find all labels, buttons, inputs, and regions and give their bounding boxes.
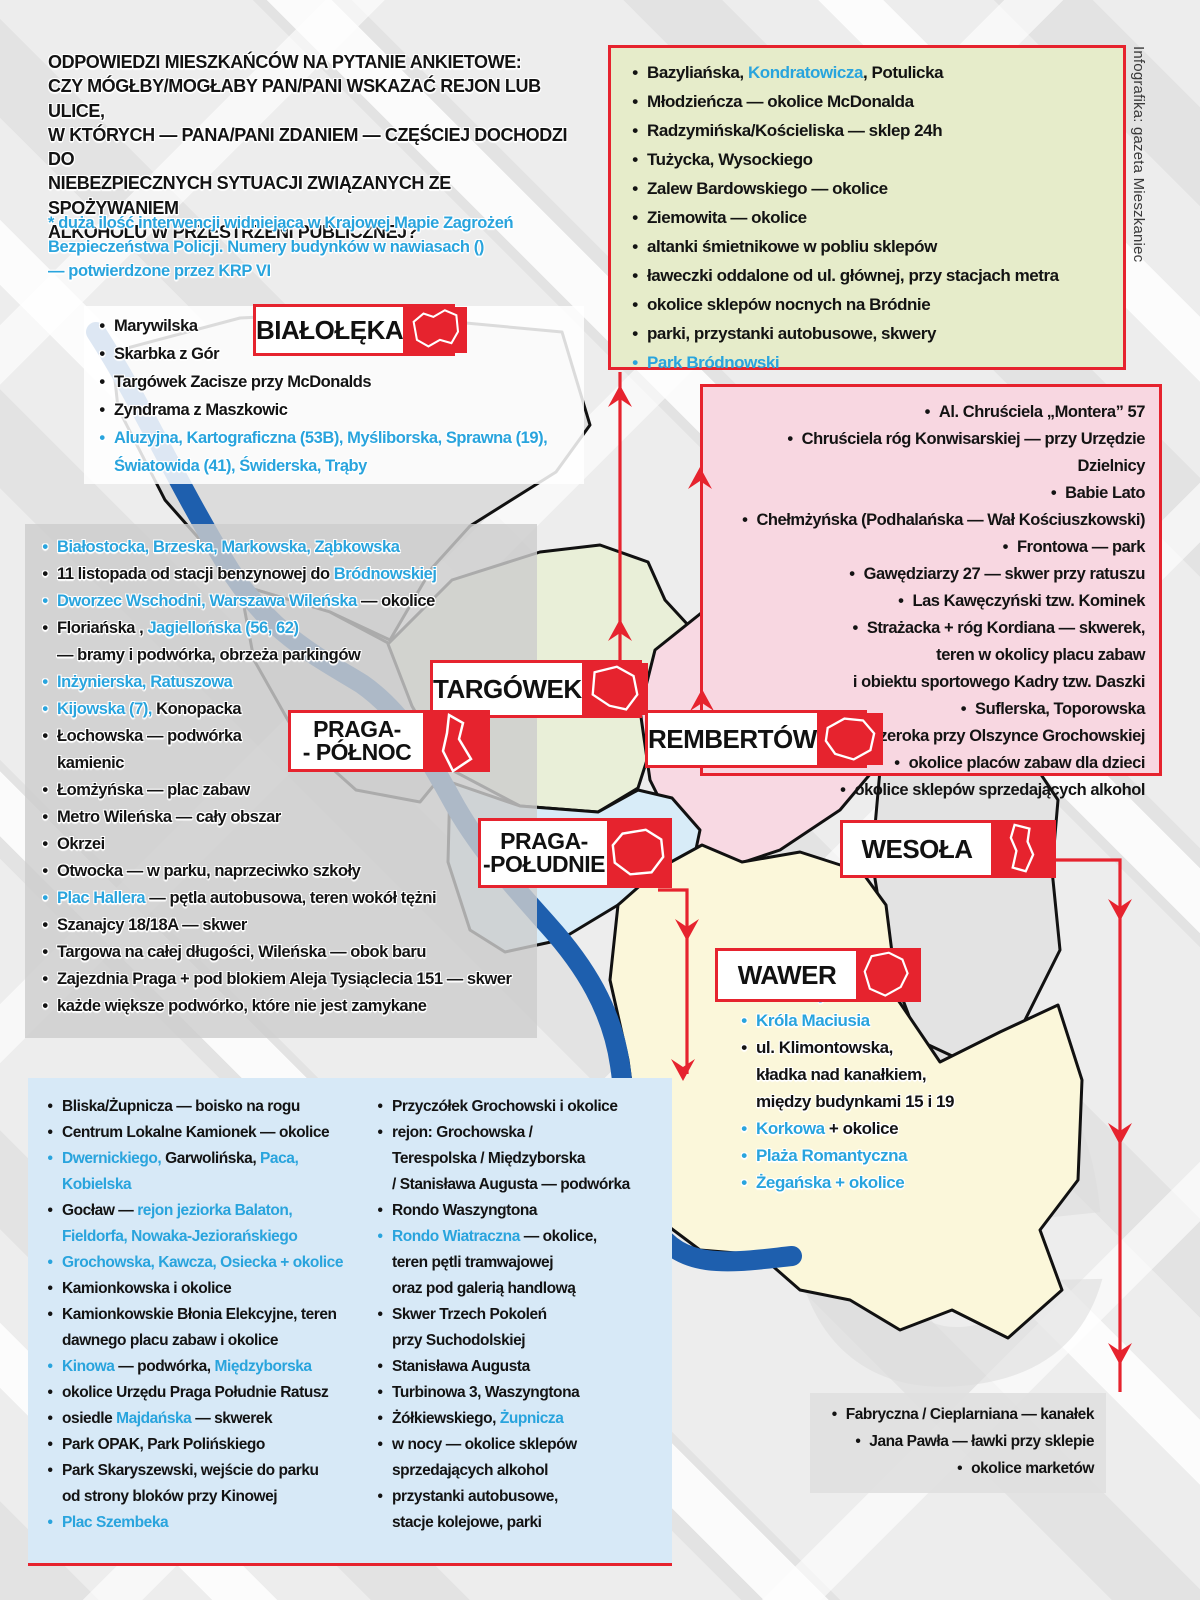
list-item: •rejon: Grochowska / Terespolska / Międz… <box>368 1120 664 1198</box>
bullet-icon: • <box>925 403 930 421</box>
bullet-icon: • <box>90 340 114 368</box>
list-item: •Jana Pawła — ławki przy sklepie <box>822 1428 1094 1455</box>
bullet-icon: • <box>732 1169 756 1196</box>
bullet-icon: • <box>732 1034 756 1061</box>
list-item: •Gocław — rejon jeziorka Balaton, Fieldo… <box>38 1198 368 1250</box>
bullet-icon: • <box>33 777 57 804</box>
list-item: •Targówek Zacisze przy McDonalds <box>90 368 578 396</box>
list-item: •Przyczółek Grochowski i okolice <box>368 1094 664 1120</box>
list-item-text: Targowa na całej długości, Wileńska — ob… <box>57 939 533 966</box>
list-item: •Dworzec Wschodni, Warszawa Wileńska — o… <box>33 588 533 615</box>
list-item: •Park Bródnowski <box>623 348 1111 377</box>
bullet-icon: • <box>38 1302 62 1328</box>
list-item-text: Plaża Romantyczna <box>756 1142 1034 1169</box>
bullet-icon: • <box>33 669 57 696</box>
list-item-text: Skwer Trzech Pokoleń przy Suchodolskiej <box>392 1302 664 1354</box>
bullet-icon: • <box>38 1510 62 1536</box>
bullet-icon: • <box>623 145 647 174</box>
list-item-text: Korkowa + okolice <box>756 1115 1034 1142</box>
list-item-text: okolice sklepów sprzedających alkohol <box>854 781 1145 799</box>
bullet-icon: • <box>33 939 57 966</box>
bullet-icon: • <box>38 1458 62 1484</box>
bullet-icon: • <box>732 1007 756 1034</box>
list-item-text: Park Skaryszewski, wejście do parku od s… <box>62 1458 368 1510</box>
list-item-text: Okrzei <box>57 831 533 858</box>
wawer-list-panel: •Derkaczy + okolice•Króla Maciusia•ul. K… <box>732 980 1034 1196</box>
list-item: •Otwocka — w parku, naprzeciwko szkoły <box>33 858 533 885</box>
list-item-text: Gawędziarzy 27 — skwer przy ratuszu <box>864 565 1145 583</box>
list-item-text: w nocy — okolice sklepów sprzedających a… <box>392 1432 664 1484</box>
bullet-icon: • <box>623 116 647 145</box>
list-item-text: Żółkiewskiego, Żupnicza <box>392 1406 664 1432</box>
bullet-icon: • <box>623 348 647 377</box>
bullet-icon: • <box>623 319 647 348</box>
district-shape-icon <box>607 821 669 885</box>
bullet-icon: • <box>898 592 903 610</box>
district-label-text: REMBERTÓW <box>648 713 817 765</box>
bullet-icon: • <box>623 174 647 203</box>
list-item: •okolice sklepów nocnych na Bródnie <box>623 290 1111 319</box>
list-item-text: okolice marketów <box>971 1460 1094 1477</box>
bullet-icon: • <box>368 1354 392 1380</box>
list-item: •Tużycka, Wysockiego <box>623 145 1111 174</box>
bullet-icon: • <box>855 1433 860 1450</box>
list-item: •parki, przystanki autobusowe, skwery <box>623 319 1111 348</box>
list-item: •okolice sklepów sprzedających alkohol <box>717 777 1145 804</box>
district-shape-icon <box>991 823 1053 875</box>
bullet-icon: • <box>38 1198 62 1224</box>
list-item: •Plaża Romantyczna <box>732 1142 1034 1169</box>
list-item-text: Metro Wileńska — cały obszar <box>57 804 533 831</box>
list-item: •Żegańska + okolice <box>732 1169 1034 1196</box>
wesola-list-panel: •Fabryczna / Cieplarniana — kanałek•Jana… <box>810 1393 1106 1493</box>
list-item: •Plac Hallera — pętla autobusowa, teren … <box>33 885 533 912</box>
list-item-text: Łomżyńska — plac zabaw <box>57 777 533 804</box>
list-item: •Radzymińska/Kościeliska — sklep 24h <box>623 116 1111 145</box>
list-item: •Strażacka + róg Kordiana — skwerek, ter… <box>717 615 1145 696</box>
footnote: * duża ilość interwencji widniejąca w Kr… <box>48 212 553 284</box>
bullet-icon: • <box>368 1432 392 1458</box>
list-item-text: Szanajcy 18/18A — skwer <box>57 912 533 939</box>
list-item: •Szanajcy 18/18A — skwer <box>33 912 533 939</box>
list-item-text: Króla Maciusia <box>756 1007 1034 1034</box>
list-item: •Kamionkowskie Błonia Elekcyjne, teren d… <box>38 1302 368 1354</box>
bullet-icon: • <box>38 1432 62 1458</box>
list-item-text: Suflerska, Toporowska <box>975 700 1145 718</box>
bullet-icon: • <box>38 1276 62 1302</box>
district-label-praga-polnoc: PRAGA- - PÓŁNOC <box>288 710 490 772</box>
bullet-icon: • <box>368 1198 392 1224</box>
list-item: •Metro Wileńska — cały obszar <box>33 804 533 831</box>
bullet-icon: • <box>33 993 57 1020</box>
list-item: •Turbinowa 3, Waszyngtona <box>368 1380 664 1406</box>
list-item: •Zyndrama z Maszkowic <box>90 396 578 424</box>
list-item-text: Grochowska, Kawcza, Osiecka + okolice <box>62 1250 368 1276</box>
district-label-text: WESOŁA <box>843 823 991 875</box>
list-item: •Park Skaryszewski, wejście do parku od … <box>38 1458 368 1510</box>
district-shape-icon <box>403 307 467 353</box>
bullet-icon: • <box>894 754 899 772</box>
list-item: •Okrzei <box>33 831 533 858</box>
district-shape-icon <box>817 713 883 765</box>
list-item: •Króla Maciusia <box>732 1007 1034 1034</box>
list-item-text: Park OPAK, Park Polińskiego <box>62 1432 368 1458</box>
list-item: •Fabryczna / Cieplarniana — kanałek <box>822 1401 1094 1428</box>
list-item: •Park OPAK, Park Polińskiego <box>38 1432 368 1458</box>
district-label-wesola: WESOŁA <box>840 820 1056 878</box>
bullet-icon: • <box>1051 484 1056 502</box>
list-item-text: Radzymińska/Kościeliska — sklep 24h <box>647 116 1111 145</box>
list-item: •Korkowa + okolice <box>732 1115 1034 1142</box>
bullet-icon: • <box>33 561 57 588</box>
bullet-icon: • <box>368 1380 392 1406</box>
list-item-text: Otwocka — w parku, naprzeciwko szkoły <box>57 858 533 885</box>
list-item-text: Tużycka, Wysockiego <box>647 145 1111 174</box>
district-label-bialoleka: BIAŁOŁĘKA <box>253 304 455 356</box>
list-item: •Centrum Lokalne Kamionek — okolice <box>38 1120 368 1146</box>
list-item-text: Bliska/Żupnicza — boisko na rogu <box>62 1094 368 1120</box>
list-item-text: Białostocka, Brzeska, Markowska, Ząbkows… <box>57 534 533 561</box>
district-label-text: BIAŁOŁĘKA <box>256 307 403 353</box>
bullet-icon: • <box>38 1406 62 1432</box>
list-item: •Bazyliańska, Kondratowicza, Potulicka <box>623 58 1111 87</box>
district-label-text: WAWER <box>718 951 856 999</box>
list-item-text: Dworzec Wschodni, Warszawa Wileńska — ok… <box>57 588 533 615</box>
district-shape-icon <box>856 951 918 999</box>
district-shape-icon <box>423 713 487 769</box>
list-item: •Białostocka, Brzeska, Markowska, Ząbkow… <box>33 534 533 561</box>
bullet-icon: • <box>33 804 57 831</box>
list-item-text: Ziemowita — okolice <box>647 203 1111 232</box>
list-item: •Chruściela róg Konwisarskiej — przy Urz… <box>717 426 1145 480</box>
targowek-list: •Bazyliańska, Kondratowicza, Potulicka•M… <box>623 58 1111 377</box>
bullet-icon: • <box>90 368 114 396</box>
list-item: •Chełmżyńska (Podhalańska — Wał Kościusz… <box>717 507 1145 534</box>
district-label-wawer: WAWER <box>715 948 921 1002</box>
bullet-icon: • <box>368 1120 392 1146</box>
list-item-text: Plac Szembeka <box>62 1510 368 1536</box>
list-item: •osiedle Majdańska — skwerek <box>38 1406 368 1432</box>
list-item-text: parki, przystanki autobusowe, skwery <box>647 319 1111 348</box>
list-item: •Łomżyńska — plac zabaw <box>33 777 533 804</box>
district-label-text: PRAGA- -POŁUDNIE <box>481 821 607 885</box>
list-item-text: Żegańska + okolice <box>756 1169 1034 1196</box>
list-item-text: okolice sklepów nocnych na Bródnie <box>647 290 1111 319</box>
list-item-text: Jana Pawła — ławki przy sklepie <box>869 1433 1094 1450</box>
bullet-icon: • <box>38 1354 62 1380</box>
targowek-list-panel: •Bazyliańska, Kondratowicza, Potulicka•M… <box>608 45 1126 370</box>
list-item: •Bliska/Żupnicza — boisko na rogu <box>38 1094 368 1120</box>
list-item-text: Dwernickiego, Garwolińska, Paca, Kobiels… <box>62 1146 368 1198</box>
list-item-text: Plac Hallera — pętla autobusowa, teren w… <box>57 885 533 912</box>
bullet-icon: • <box>368 1484 392 1510</box>
list-item: •Kinowa — podwórka, Międzyborska <box>38 1354 368 1380</box>
bullet-icon: • <box>623 203 647 232</box>
bullet-icon: • <box>368 1302 392 1328</box>
bullet-icon: • <box>38 1380 62 1406</box>
bullet-icon: • <box>852 619 857 637</box>
list-item: •Al. Chruściela „Montera” 57 <box>717 399 1145 426</box>
bullet-icon: • <box>90 396 114 424</box>
bullet-icon: • <box>832 1406 837 1423</box>
list-item-text: Zajezdnia Praga + pod blokiem Aleja Tysi… <box>57 966 533 993</box>
list-item-text: okolice Urzędu Praga Południe Ratusz <box>62 1380 368 1406</box>
list-item: •Grochowska, Kawcza, Osiecka + okolice <box>38 1250 368 1276</box>
list-item: •Stanisława Augusta <box>368 1354 664 1380</box>
bullet-icon: • <box>623 87 647 116</box>
praga-poludnie-column-2: •Przyczółek Grochowski i okolice•rejon: … <box>368 1094 664 1551</box>
bullet-icon: • <box>38 1120 62 1146</box>
list-item-text: Kamionkowska i okolice <box>62 1276 368 1302</box>
list-item-text: Strażacka + róg Kordiana — skwerek, tere… <box>853 619 1145 691</box>
bullet-icon: • <box>368 1094 392 1120</box>
list-item-text: Aluzyjna, Kartograficzna (53B), Myślibor… <box>114 424 578 480</box>
list-item: •Plac Szembeka <box>38 1510 368 1536</box>
list-item: •Gawędziarzy 27 — skwer przy ratuszu <box>717 561 1145 588</box>
list-item-text: ul. Klimontowska, kładka nad kanałkiem, … <box>756 1034 1034 1115</box>
list-item-text: Chełmżyńska (Podhalańska — Wał Kościuszk… <box>756 511 1145 529</box>
bullet-icon: • <box>33 588 57 615</box>
list-item-text: Kinowa — podwórka, Międzyborska <box>62 1354 368 1380</box>
praga-polnoc-list: •Białostocka, Brzeska, Markowska, Ząbkow… <box>33 534 533 1020</box>
list-item: •11 listopada od stacji benzynowej do Br… <box>33 561 533 588</box>
list-item-text: Chruściela róg Konwisarskiej — przy Urzę… <box>802 430 1149 475</box>
list-item: •w nocy — okolice sklepów sprzedających … <box>368 1432 664 1484</box>
bullet-icon: • <box>849 565 854 583</box>
bullet-icon: • <box>33 966 57 993</box>
list-item-text: Kamionkowskie Błonia Elekcyjne, teren da… <box>62 1302 368 1354</box>
list-item-text: Frontowa — park <box>1017 538 1145 556</box>
bullet-icon: • <box>1003 538 1008 556</box>
bullet-icon: • <box>33 534 57 561</box>
district-shape-icon <box>582 663 648 715</box>
list-item-text: Rondo Waszyngtona <box>392 1198 664 1224</box>
bullet-icon: • <box>38 1250 62 1276</box>
list-item: •Kamionkowska i okolice <box>38 1276 368 1302</box>
list-item: •Dwernickiego, Garwolińska, Paca, Kobiel… <box>38 1146 368 1198</box>
list-item: •Zalew Bardowskiego — okolice <box>623 174 1111 203</box>
list-item: •przystanki autobusowe, stacje kolejowe,… <box>368 1484 664 1536</box>
praga-poludnie-list-panel: •Bliska/Żupnicza — boisko na rogu•Centru… <box>28 1078 672 1566</box>
list-item: •Babie Lato <box>717 480 1145 507</box>
list-item-text: altanki śmietnikowe w pobliu sklepów <box>647 232 1111 261</box>
list-item: •Rondo Waszyngtona <box>368 1198 664 1224</box>
list-item-text: Turbinowa 3, Waszyngtona <box>392 1380 664 1406</box>
bullet-icon: • <box>840 781 845 799</box>
list-item: •ławeczki oddalone od ul. głównej, przy … <box>623 261 1111 290</box>
list-item-text: osiedle Majdańska — skwerek <box>62 1406 368 1432</box>
list-item-text: ławeczki oddalone od ul. głównej, przy s… <box>647 261 1111 290</box>
wesola-list: •Fabryczna / Cieplarniana — kanałek•Jana… <box>822 1401 1094 1482</box>
list-item: •Zajezdnia Praga + pod blokiem Aleja Tys… <box>33 966 533 993</box>
list-item-text: Szeroka przy Olszynce Grochowskiej <box>869 727 1145 745</box>
list-item-text: Przyczółek Grochowski i okolice <box>392 1094 664 1120</box>
bullet-icon: • <box>33 858 57 885</box>
list-item-text: rejon: Grochowska / Terespolska / Między… <box>392 1120 664 1198</box>
list-item: •okolice Urzędu Praga Południe Ratusz <box>38 1380 368 1406</box>
bullet-icon: • <box>33 615 57 642</box>
bullet-icon: • <box>33 831 57 858</box>
bullet-icon: • <box>961 700 966 718</box>
list-item-text: Al. Chruściela „Montera” 57 <box>939 403 1145 421</box>
bullet-icon: • <box>623 58 647 87</box>
list-item-text: Bazyliańska, Kondratowicza, Potulicka <box>647 58 1111 87</box>
wawer-list: •Derkaczy + okolice•Króla Maciusia•ul. K… <box>732 980 1034 1196</box>
list-item: •Żółkiewskiego, Żupnicza <box>368 1406 664 1432</box>
bullet-icon: • <box>33 723 57 750</box>
list-item: •Ziemowita — okolice <box>623 203 1111 232</box>
list-item: •altanki śmietnikowe w pobliu sklepów <box>623 232 1111 261</box>
bullet-icon: • <box>90 424 114 452</box>
bullet-icon: • <box>732 1142 756 1169</box>
bullet-icon: • <box>90 312 114 340</box>
bullet-icon: • <box>742 511 747 529</box>
bullet-icon: • <box>38 1146 62 1172</box>
list-item-text: Park Bródnowski <box>647 348 1111 377</box>
list-item: •Frontowa — park <box>717 534 1145 561</box>
list-item: •Skwer Trzech Pokoleń przy Suchodolskiej <box>368 1302 664 1354</box>
list-item-text: okolice placów zabaw dla dzieci <box>909 754 1145 772</box>
praga-polnoc-list-panel: •Białostocka, Brzeska, Markowska, Ząbkow… <box>25 524 537 1038</box>
list-item-text: 11 listopada od stacji benzynowej do Bró… <box>57 561 533 588</box>
list-item-text: Zyndrama z Maszkowic <box>114 396 578 424</box>
list-item: •Młodzieńcza — okolice McDonalda <box>623 87 1111 116</box>
list-item-text: Młodzieńcza — okolice McDonalda <box>647 87 1111 116</box>
praga-poludnie-list-col1: •Bliska/Żupnicza — boisko na rogu•Centru… <box>38 1094 368 1536</box>
list-item: •Aluzyjna, Kartograficzna (53B), Myślibo… <box>90 424 578 480</box>
bullet-icon: • <box>33 885 57 912</box>
list-item-text: Rondo Wiatraczna — okolice, teren pętli … <box>392 1224 664 1302</box>
list-item-text: Stanisława Augusta <box>392 1354 664 1380</box>
district-label-text: TARGÓWEK <box>433 663 582 715</box>
list-item: •każde większe podwórko, które nie jest … <box>33 993 533 1020</box>
bullet-icon: • <box>33 696 57 723</box>
list-item: •okolice marketów <box>822 1455 1094 1482</box>
bullet-icon: • <box>787 430 792 448</box>
district-label-text: PRAGA- - PÓŁNOC <box>291 713 423 769</box>
list-item-text: Gocław — rejon jeziorka Balaton, Fieldor… <box>62 1198 368 1250</box>
bullet-icon: • <box>623 261 647 290</box>
bullet-icon: • <box>38 1094 62 1120</box>
district-label-rembertow: REMBERTÓW <box>645 710 867 768</box>
list-item-text: Fabryczna / Cieplarniana — kanałek <box>846 1406 1094 1423</box>
list-item-text: Las Kawęczyński tzw. Kominek <box>912 592 1145 610</box>
praga-poludnie-list-col2: •Przyczółek Grochowski i okolice•rejon: … <box>368 1094 664 1536</box>
bullet-icon: • <box>368 1406 392 1432</box>
list-item-text: Centrum Lokalne Kamionek — okolice <box>62 1120 368 1146</box>
list-item: •Las Kawęczyński tzw. Kominek <box>717 588 1145 615</box>
list-item-text: przystanki autobusowe, stacje kolejowe, … <box>392 1484 664 1536</box>
list-item-text: Babie Lato <box>1065 484 1145 502</box>
praga-poludnie-column-1: •Bliska/Żupnicza — boisko na rogu•Centru… <box>38 1094 368 1551</box>
bullet-icon: • <box>368 1224 392 1250</box>
bullet-icon: • <box>732 1115 756 1142</box>
list-item-text: Zalew Bardowskiego — okolice <box>647 174 1111 203</box>
bullet-icon: • <box>33 912 57 939</box>
list-item: •Rondo Wiatraczna — okolice, teren pętli… <box>368 1224 664 1302</box>
district-label-praga-poludnie: PRAGA- -POŁUDNIE <box>478 818 672 888</box>
list-item: •ul. Klimontowska, kładka nad kanałkiem,… <box>732 1034 1034 1115</box>
bullet-icon: • <box>623 290 647 319</box>
bullet-icon: • <box>623 232 647 261</box>
list-item: •Targowa na całej długości, Wileńska — o… <box>33 939 533 966</box>
list-item-text: Targówek Zacisze przy McDonalds <box>114 368 578 396</box>
credit-line: Infografika: gazeta Mieszkaniec <box>1130 46 1147 262</box>
bullet-icon: • <box>957 1460 962 1477</box>
list-item-text: każde większe podwórko, które nie jest z… <box>57 993 533 1020</box>
